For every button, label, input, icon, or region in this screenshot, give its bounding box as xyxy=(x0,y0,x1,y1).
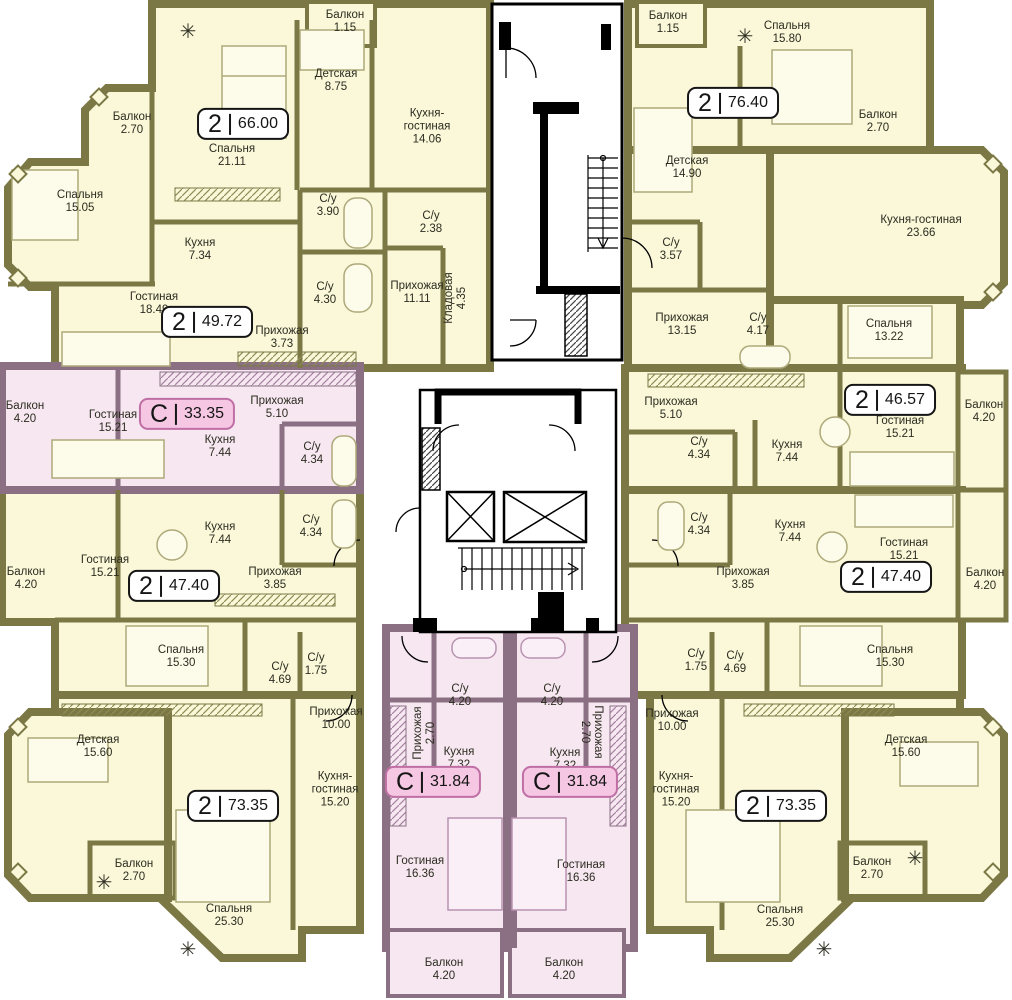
room-label-balcony: Балкон4.20 xyxy=(425,957,464,983)
room-label-bedroom: Спальня25.30 xyxy=(757,904,803,930)
bathtub-icon xyxy=(452,638,496,658)
badge-divider xyxy=(229,114,231,135)
badge-room-count: C xyxy=(396,769,414,795)
apartment-badge-66[interactable]: 266.00 xyxy=(197,108,289,140)
room-label-balcony: Балкон4.20 xyxy=(6,400,45,426)
bathtub-icon xyxy=(521,638,565,658)
badge-area: 46.57 xyxy=(885,391,925,409)
badge-divider xyxy=(421,772,423,793)
room-label-bathroom: С/у1.75 xyxy=(305,652,327,678)
floor-plan-drawing: ✳✳ ✳✳ ✳✳ xyxy=(0,0,1012,1000)
room-label-bedroom: Спальня15.30 xyxy=(158,644,204,670)
room-label-balcony: Балкон2.70 xyxy=(853,856,892,882)
bed-icon xyxy=(448,818,502,910)
room-label-hallway: Прихожая11.11 xyxy=(390,280,443,306)
svg-text:✳: ✳ xyxy=(737,26,754,48)
room-label-balcony: Балкон1.15 xyxy=(649,10,688,36)
badge-area: 76.40 xyxy=(728,94,768,112)
bathtub-icon xyxy=(344,264,372,312)
room-label-living-room: Гостиная16.36 xyxy=(396,855,444,881)
svg-text:✳: ✳ xyxy=(816,939,833,961)
badge-area: 49.72 xyxy=(202,313,242,331)
badge-room-count: C xyxy=(150,401,168,427)
sofa-icon xyxy=(52,440,164,478)
room-label-kitchen: Кухня7.34 xyxy=(185,237,216,263)
room-label-hallway: Прихожая3.85 xyxy=(248,566,301,592)
badge-room-count: 2 xyxy=(855,387,869,413)
badge-area: 33.35 xyxy=(184,405,224,423)
badge-divider xyxy=(193,312,195,333)
room-label-kitchen: Кухня7.44 xyxy=(205,521,236,547)
badge-divider xyxy=(872,567,874,588)
room-label-balcony: Балкон1.15 xyxy=(326,9,365,35)
room-label-hallway: Прихожая10.00 xyxy=(645,708,698,734)
room-label-storage: Кладовая4.35 xyxy=(443,272,469,324)
room-label-hallway: Прихожая5.10 xyxy=(250,395,303,421)
badge-room-count: 2 xyxy=(172,309,186,335)
sofa-icon xyxy=(855,495,953,527)
room-label-kids-room: Детская8.75 xyxy=(315,68,358,94)
room-label-kitchen: Кухня7.44 xyxy=(205,434,236,460)
room-label-balcony: Балкон2.70 xyxy=(113,111,152,137)
badge-divider xyxy=(719,93,721,114)
badge-area: 66.00 xyxy=(238,115,278,133)
room-label-hallway: Прихожая2.70 xyxy=(412,706,438,759)
studio-badge-31-right[interactable]: C31.84 xyxy=(522,766,618,798)
room-label-bathroom: С/у3.90 xyxy=(317,193,339,219)
room-label-bedroom: Спальня25.30 xyxy=(206,903,252,929)
table-icon xyxy=(820,417,850,447)
table-icon xyxy=(157,530,187,560)
room-label-hallway: Прихожая3.73 xyxy=(255,325,308,351)
badge-divider xyxy=(876,390,878,411)
room-label-kitchen-living: Кухня-гостиная15.20 xyxy=(303,771,367,810)
room-label-bathroom: С/у2.38 xyxy=(420,210,442,236)
room-label-bathroom: С/у4.34 xyxy=(300,514,322,540)
badge-divider xyxy=(767,796,769,817)
badge-divider xyxy=(558,772,560,793)
apartment-badge-73-right[interactable]: 273.35 xyxy=(735,790,827,822)
room-label-bathroom: С/у4.30 xyxy=(314,281,336,307)
room-label-living-room: Гостиная15.21 xyxy=(89,409,137,435)
room-label-kitchen: Кухня7.44 xyxy=(775,519,806,545)
room-label-living-room: Гостиная16.36 xyxy=(557,859,605,885)
room-label-hallway: Прихожая13.15 xyxy=(655,312,708,338)
room-label-bedroom: Спальня15.05 xyxy=(57,189,103,215)
bed-icon xyxy=(300,30,364,70)
badge-room-count: 2 xyxy=(208,111,222,137)
badge-room-count: 2 xyxy=(851,564,865,590)
room-label-balcony: Балкон2.70 xyxy=(859,109,898,135)
apartment-badge-47-left[interactable]: 247.40 xyxy=(128,570,220,602)
badge-area: 31.84 xyxy=(567,773,607,791)
bathtub-icon xyxy=(740,346,790,368)
svg-text:✳: ✳ xyxy=(96,872,113,894)
studio-badge-31-left[interactable]: C31.84 xyxy=(385,766,481,798)
elevator-shaft-icon xyxy=(447,492,586,542)
room-label-bedroom: Спальня15.30 xyxy=(867,644,913,670)
room-label-bathroom: С/у4.17 xyxy=(747,312,769,338)
badge-room-count: 2 xyxy=(746,793,760,819)
bed-icon xyxy=(176,810,270,902)
badge-area: 47.40 xyxy=(881,568,921,586)
room-label-bedroom: Спальня21.11 xyxy=(209,143,255,169)
room-label-kitchen-living: Кухня-гостиная15.20 xyxy=(644,771,708,810)
room-label-bedroom: Спальня15.80 xyxy=(764,20,810,46)
apartment-badge-73-left[interactable]: 273.35 xyxy=(187,790,279,822)
room-label-kitchen-living: Кухня-гостиная14.06 xyxy=(395,108,459,147)
sofa-icon xyxy=(850,452,954,486)
apartment-badge-76[interactable]: 276.40 xyxy=(687,87,779,119)
badge-room-count: 2 xyxy=(198,793,212,819)
room-label-balcony: Балкон4.20 xyxy=(965,399,1004,425)
room-label-kitchen: Кухня7.44 xyxy=(772,439,803,465)
svg-text:✳: ✳ xyxy=(180,939,197,961)
bed-icon xyxy=(772,50,852,124)
sofa-icon xyxy=(62,332,170,366)
badge-area: 73.35 xyxy=(228,797,268,815)
stair-core-top xyxy=(492,4,622,360)
room-label-balcony: Балкон4.20 xyxy=(545,957,584,983)
room-label-bathroom: С/у4.69 xyxy=(724,650,746,676)
apartment-badge-47-right[interactable]: 247.40 xyxy=(840,561,932,593)
room-label-kids-room: Детская15.60 xyxy=(77,734,120,760)
svg-text:✳: ✳ xyxy=(180,21,197,43)
room-label-bedroom: Спальня13.22 xyxy=(866,318,912,344)
room-label-bathroom: С/у3.57 xyxy=(660,237,682,263)
table-icon xyxy=(817,532,847,562)
room-label-living-room: Гостиная15.21 xyxy=(880,537,928,563)
badge-room-count: 2 xyxy=(698,90,712,116)
room-label-bathroom: С/у4.34 xyxy=(301,441,323,467)
room-label-living-room: Гостиная15.21 xyxy=(81,554,129,580)
badge-divider xyxy=(175,404,177,425)
room-label-bathroom: С/у4.34 xyxy=(688,436,710,462)
badge-area: 73.35 xyxy=(776,797,816,815)
badge-divider xyxy=(160,576,162,597)
badge-divider xyxy=(219,796,221,817)
room-label-kids-room: Детская15.60 xyxy=(885,734,928,760)
badge-room-count: C xyxy=(533,769,551,795)
room-label-balcony: Балкон2.70 xyxy=(115,858,154,884)
badge-room-count: 2 xyxy=(139,573,153,599)
badge-area: 31.84 xyxy=(430,773,470,791)
room-label-kids-room: Детская14.90 xyxy=(666,155,709,181)
bathtub-icon xyxy=(658,502,684,550)
apartment-badge-46[interactable]: 246.57 xyxy=(844,384,936,416)
svg-text:✳: ✳ xyxy=(907,848,924,870)
room-label-hallway: Прихожая5.10 xyxy=(644,396,697,422)
room-label-hallway: Прихожая10.00 xyxy=(309,706,362,732)
bathtub-icon xyxy=(344,198,372,248)
room-label-balcony: Балкон4.20 xyxy=(966,567,1005,593)
room-label-balcony: Балкон4.20 xyxy=(7,566,46,592)
bathtub-icon xyxy=(332,436,356,486)
room-label-hallway: Прихожая3.85 xyxy=(716,566,769,592)
room-label-kitchen-living: Кухня-гостиная23.66 xyxy=(880,214,961,240)
room-label-hallway: Прихожая2.70 xyxy=(578,705,604,758)
bed-icon xyxy=(686,810,780,902)
badge-area: 47.40 xyxy=(169,577,209,595)
room-label-bathroom: С/у4.69 xyxy=(269,661,291,687)
room-label-living-room: Гостиная15.21 xyxy=(876,415,924,441)
room-label-bathroom: С/у1.75 xyxy=(685,648,707,674)
room-label-bathroom: С/у4.20 xyxy=(449,683,471,709)
bathtub-icon xyxy=(332,500,356,548)
floor-plan: ✳✳ ✳✳ ✳✳ 266.00 249.72 C33.35 247.40 273… xyxy=(0,0,1012,1000)
studio-badge-33[interactable]: C33.35 xyxy=(139,398,235,430)
room-label-bathroom: С/у4.34 xyxy=(688,512,710,538)
room-label-bathroom: С/у4.20 xyxy=(541,683,563,709)
apartment-badge-49[interactable]: 249.72 xyxy=(161,306,253,338)
